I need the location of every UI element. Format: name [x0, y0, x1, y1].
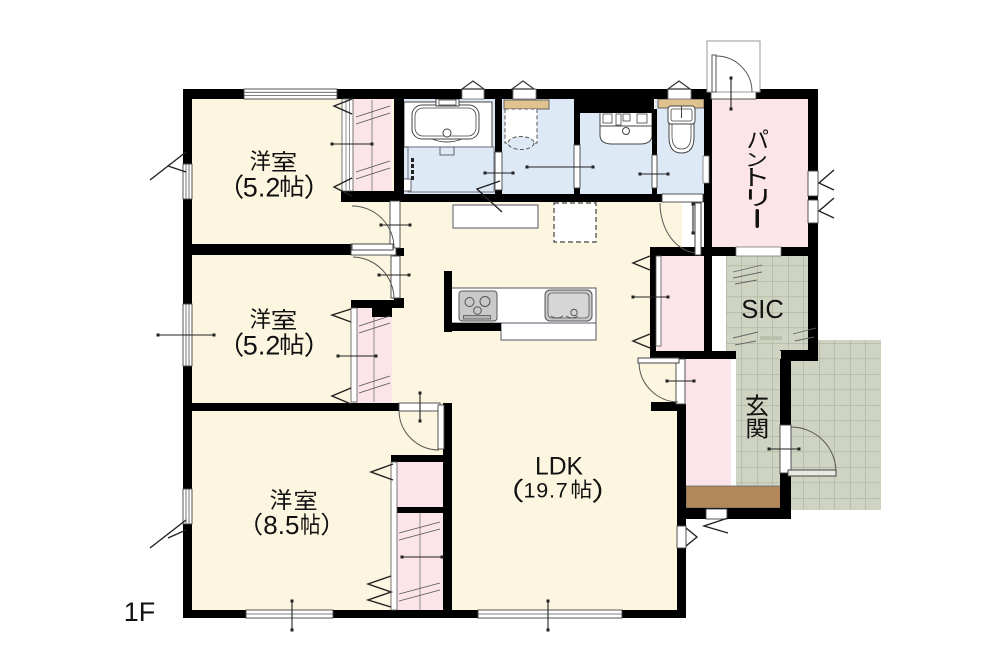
svg-text:1F: 1F — [124, 597, 156, 627]
svg-text:LDK: LDK — [535, 454, 584, 481]
svg-text:8.5: 8.5 — [263, 510, 299, 540]
svg-text:5.2: 5.2 — [243, 173, 281, 203]
svg-text:19.7: 19.7 — [524, 478, 569, 502]
svg-text:SIC: SIC — [741, 296, 784, 324]
svg-text:5.2: 5.2 — [243, 331, 281, 361]
